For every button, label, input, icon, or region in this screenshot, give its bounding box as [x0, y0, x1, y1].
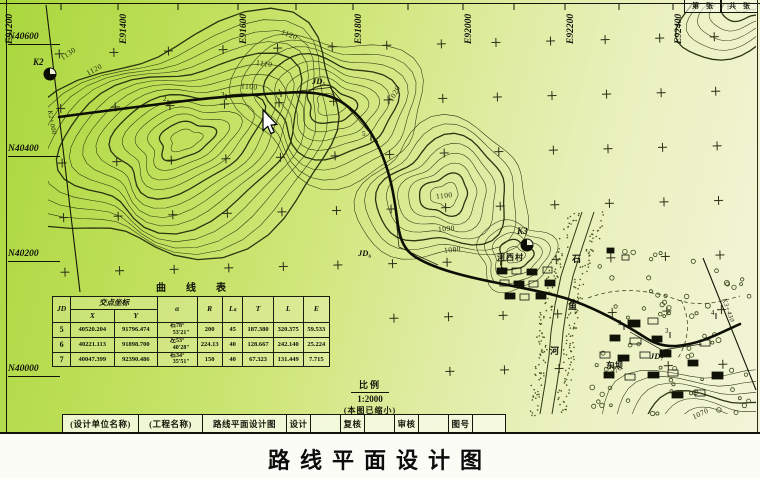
- col-header-e: E: [303, 297, 329, 323]
- cell-alpha: 左53°40′28″: [157, 337, 197, 352]
- edge-ticks: [61, 3, 728, 10]
- curve-table-row: 6 40221.113 91898.700 左53°40′28″ 224.13 …: [53, 337, 330, 352]
- col-header-coords: 交点坐标: [71, 297, 158, 310]
- contour-label: 1080: [444, 245, 462, 254]
- curve-table-row: 7 40047.399 92390.486 右34°35′51″ 150 40 …: [53, 352, 330, 367]
- sheet-count-box: 第 张 共 张: [684, 0, 758, 13]
- river-name-char: 石: [572, 255, 581, 264]
- cell-y: 92390.486: [114, 352, 157, 367]
- tb-review-label: 审核: [394, 414, 418, 433]
- map-frame-right: [757, 0, 758, 433]
- sheet-number-cell: 第 张: [684, 0, 721, 13]
- map-frame-left: [6, 0, 7, 433]
- tb-design-label: 设计: [286, 414, 310, 433]
- e-grid-label: E92000: [465, 14, 475, 44]
- cell-l: 131.449: [273, 352, 303, 367]
- cell-r: 150: [197, 352, 222, 367]
- cell-y: 91796.474: [114, 323, 157, 338]
- village-label-hexicun: 河西村: [497, 254, 524, 262]
- alpha-minsec: 40′28″: [158, 345, 197, 352]
- jd6-label: JD₆: [358, 249, 371, 258]
- screenshot-stage: E91200 E91400 E91600 E91800 E92000 E9220…: [0, 0, 760, 479]
- cell-y: 91898.700: [114, 337, 157, 352]
- tb-check-value: [364, 414, 394, 433]
- e-grid-label: E91800: [355, 14, 365, 44]
- n-grid-label: N40200: [8, 250, 60, 262]
- cell-t: 128.667: [243, 337, 273, 352]
- cell-l: 242.140: [273, 337, 303, 352]
- station-number: 2: [618, 320, 622, 327]
- tb-project-name: (工程名称): [138, 414, 202, 433]
- cell-x: 40047.399: [71, 352, 114, 367]
- scale-note: 比例 1:2000 (本图已缩小): [326, 375, 414, 416]
- k3-marker-label: K3: [517, 227, 528, 236]
- cell-jd: 5: [53, 323, 71, 338]
- river: [540, 212, 594, 414]
- cell-l: 320.375: [273, 323, 303, 338]
- tb-design-unit: (设计单位名称): [62, 414, 138, 433]
- alpha-deg: 右78°: [158, 323, 197, 330]
- river-bank-stipple: [530, 211, 604, 416]
- contour-label: 1100: [436, 191, 453, 200]
- village-label-dongba: 东坝: [606, 362, 624, 370]
- station-number: 4: [277, 89, 281, 96]
- station-number: 4: [711, 310, 715, 317]
- cell-t: 67.323: [243, 352, 273, 367]
- scale-label: 比例: [351, 378, 389, 393]
- e-grid-label: E91400: [120, 14, 130, 44]
- contour-label: 1100: [241, 82, 258, 91]
- tb-drawing-name: 路线平面设计图: [202, 414, 286, 433]
- col-header-x: X: [71, 310, 114, 323]
- contour-label: 1090: [438, 224, 456, 233]
- cell-r: 224.13: [197, 337, 222, 352]
- cell-ls: 40: [222, 337, 243, 352]
- tb-check-label: 复核: [340, 414, 364, 433]
- cell-alpha: 右78°53′21″: [157, 323, 197, 338]
- sheet-total-cell: 共 张: [721, 0, 758, 13]
- alpha-minsec: 35′51″: [158, 359, 197, 366]
- n-grid-label: N40400: [8, 145, 60, 157]
- curve-table-title: 曲线表: [52, 279, 330, 294]
- station-number: 5: [362, 131, 366, 138]
- cell-x: 40520.204: [71, 323, 114, 338]
- km-stones: [44, 68, 533, 251]
- k2-marker-label: K2: [33, 58, 44, 67]
- col-header-jd: JD: [53, 297, 71, 323]
- tb-sheetno-label: 图号: [448, 414, 472, 433]
- cell-r: 200: [197, 323, 222, 338]
- alpha-deg: 右34°: [158, 353, 197, 360]
- river-name-char: 鱼: [568, 302, 577, 311]
- n-grid-label: N40600: [8, 33, 60, 45]
- alpha-deg: 左53°: [158, 338, 197, 345]
- cell-x: 40221.113: [71, 337, 114, 352]
- cell-e: 25.224: [303, 337, 329, 352]
- jd5-label: JD₅: [312, 77, 325, 86]
- cell-t: 187.380: [243, 323, 273, 338]
- tb-sheetno-value: [472, 414, 506, 433]
- curve-table-row: 5 40520.204 91796.474 右78°53′21″ 200 45 …: [53, 323, 330, 338]
- station-number: 3: [665, 328, 669, 335]
- tb-design-value: [310, 414, 340, 433]
- e-grid-label: E92400: [675, 14, 685, 44]
- cell-ls: 40: [222, 352, 243, 367]
- page-title: 路线平面设计图: [0, 443, 760, 475]
- col-header-t: T: [243, 297, 273, 323]
- station-number: 2: [163, 96, 167, 103]
- col-header-y: Y: [114, 310, 157, 323]
- station-number: 3: [221, 92, 225, 99]
- cell-e: 59.533: [303, 323, 329, 338]
- topographic-map: E91200 E91400 E91600 E91800 E92000 E9220…: [0, 0, 760, 433]
- col-header-ls: Lₛ: [222, 297, 243, 323]
- scale-value: 1:2000: [326, 394, 414, 404]
- jd7-label: JD₇: [650, 352, 663, 361]
- e-grid-label: E91600: [240, 14, 250, 44]
- map-frame-top: [0, 3, 760, 4]
- e-grid-label: E92200: [567, 14, 577, 44]
- title-block: (设计单位名称) (工程名称) 路线平面设计图 设计 复核 审核 图号: [62, 414, 506, 433]
- cell-alpha: 右34°35′51″: [157, 352, 197, 367]
- col-header-l: L: [273, 297, 303, 323]
- cell-jd: 7: [53, 352, 71, 367]
- cell-jd: 6: [53, 337, 71, 352]
- col-header-r: R: [197, 297, 222, 323]
- cell-ls: 45: [222, 323, 243, 338]
- col-header-alpha: α: [157, 297, 197, 323]
- curve-table: 曲线表 JD 交点坐标 α R Lₛ T L E X Y 5: [52, 279, 330, 367]
- map-graphics: [0, 0, 760, 433]
- alpha-minsec: 53′21″: [158, 330, 197, 337]
- river-name-char: 河: [550, 347, 559, 356]
- field-boundaries: [588, 291, 740, 358]
- cell-e: 7.715: [303, 352, 329, 367]
- tb-review-value: [418, 414, 448, 433]
- contour-label: 1110: [256, 59, 273, 69]
